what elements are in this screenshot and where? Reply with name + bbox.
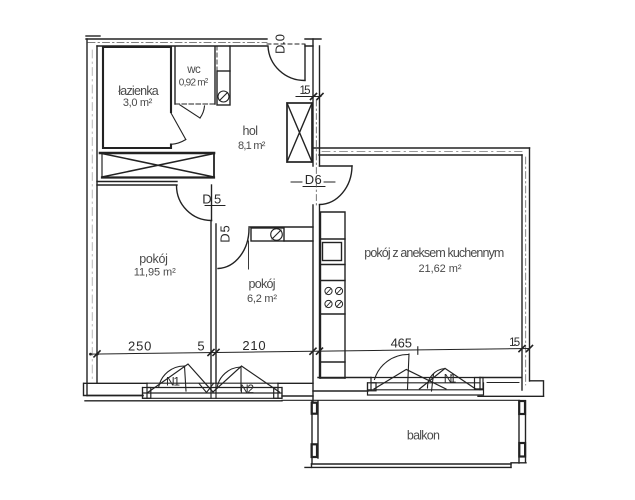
svg-text:250: 250 [128, 339, 151, 354]
svg-text:pokój: pokój [249, 277, 276, 291]
svg-text:D6: D6 [305, 172, 322, 187]
svg-text:pokój: pokój [139, 252, 168, 266]
svg-text:0,92 m²: 0,92 m² [179, 78, 209, 89]
svg-text:465: 465 [391, 335, 412, 350]
svg-text:15: 15 [509, 337, 520, 349]
svg-text:N1: N1 [444, 372, 457, 386]
svg-text:5: 5 [197, 338, 204, 353]
svg-text:D5: D5 [218, 225, 233, 243]
svg-text:15: 15 [300, 85, 311, 97]
svg-text:210: 210 [242, 338, 265, 353]
svg-text:wc: wc [186, 64, 201, 76]
svg-text:pokój z aneksem kuchennym: pokój z aneksem kuchennym [364, 246, 504, 260]
svg-text:D.0: D.0 [273, 34, 288, 54]
svg-text:hol: hol [243, 124, 258, 138]
svg-text:8,1 m²: 8,1 m² [238, 140, 266, 152]
svg-text:3,0 m²: 3,0 m² [123, 97, 153, 109]
svg-text:11,95 m²: 11,95 m² [134, 267, 176, 279]
svg-text:21,62 m²: 21,62 m² [419, 263, 462, 275]
svg-text:6,2 m²: 6,2 m² [247, 293, 277, 305]
svg-text:łazienka: łazienka [118, 84, 159, 98]
svg-text:N2: N2 [240, 382, 254, 396]
svg-text:N1: N1 [166, 375, 180, 389]
svg-text:balkon: balkon [407, 429, 440, 443]
